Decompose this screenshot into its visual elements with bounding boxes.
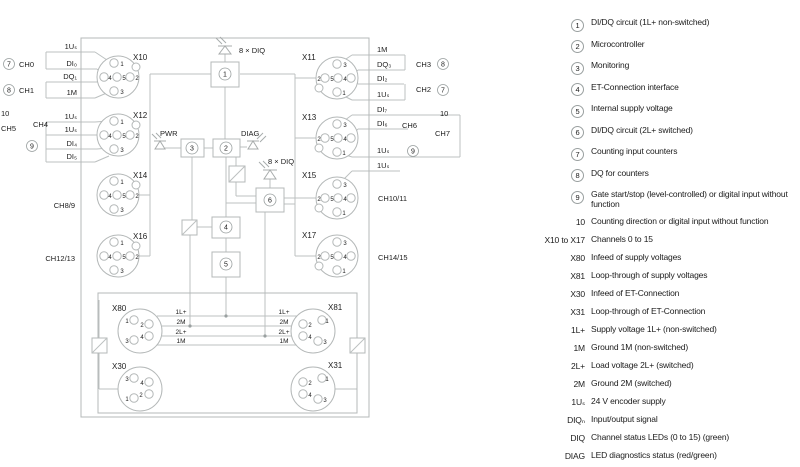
svg-text:DI₂: DI₂ bbox=[377, 74, 388, 83]
legend-row: 6DI/DQ circuit (2L+ switched) bbox=[531, 126, 797, 140]
legend-key: X30 bbox=[531, 289, 585, 299]
svg-text:DI₆: DI₆ bbox=[377, 119, 388, 128]
svg-text:X13: X13 bbox=[302, 113, 317, 122]
svg-text:2M: 2M bbox=[279, 319, 288, 326]
svg-text:1Uₛ: 1Uₛ bbox=[65, 42, 78, 51]
block-4: 4 bbox=[212, 217, 240, 238]
legend-key: X80 bbox=[531, 253, 585, 263]
connector-x31: X31 1 2 4 3 bbox=[291, 361, 343, 411]
connector-x15: X15 3 2 5 4 1 bbox=[302, 171, 358, 219]
legend-text: Gate start/stop (level-controlled) or di… bbox=[591, 190, 797, 209]
svg-text:1Uₛ: 1Uₛ bbox=[65, 112, 78, 121]
legend-text: LED diagnostics status (red/green) bbox=[591, 451, 797, 461]
legend-text: Internal supply voltage bbox=[591, 104, 797, 114]
power-bus-labels: 1L+ 2M 2L+ 1M 1L+ 2M 2L+ 1M bbox=[175, 309, 289, 345]
legend-key: 2 bbox=[571, 40, 584, 53]
channel-ch2: CH2 bbox=[416, 85, 431, 94]
legend-row: 2Microcontroller bbox=[531, 40, 797, 54]
legend-key: 5 bbox=[571, 105, 584, 118]
legend-row: 10Counting direction or digital input wi… bbox=[531, 217, 797, 227]
legend-text: Infeed of supply voltages bbox=[591, 253, 797, 263]
legend-row: X80Infeed of supply voltages bbox=[531, 253, 797, 263]
svg-text:4: 4 bbox=[224, 225, 228, 232]
connector-x14: X14 1 4 5 2 3 bbox=[97, 171, 148, 216]
channel-ch0: CH0 bbox=[19, 60, 34, 69]
svg-text:5: 5 bbox=[224, 262, 228, 269]
legend-key: 4 bbox=[571, 83, 584, 96]
svg-text:DQ₁: DQ₁ bbox=[63, 72, 77, 81]
led-diag-label: DIAG bbox=[241, 129, 260, 138]
legend-text: Loop-through of supply voltages bbox=[591, 271, 797, 281]
legend-key: DIAG bbox=[531, 451, 585, 461]
marker-8: 8 bbox=[7, 88, 11, 95]
legend-key: X31 bbox=[531, 307, 585, 317]
legend-key: 1 bbox=[571, 19, 584, 32]
connector-x80: X80 1 2 4 3 bbox=[112, 304, 162, 353]
svg-text:X12: X12 bbox=[133, 111, 148, 120]
svg-text:2: 2 bbox=[224, 146, 228, 153]
legend-text: Supply voltage 1L+ (non-switched) bbox=[591, 325, 797, 335]
legend-row: 2L+Load voltage 2L+ (switched) bbox=[531, 361, 797, 371]
svg-text:1: 1 bbox=[223, 72, 227, 79]
svg-text:1L+: 1L+ bbox=[175, 309, 186, 316]
led-diq-top: 8 × DIQ bbox=[216, 37, 265, 55]
led-pwr-label: PWR bbox=[160, 129, 178, 138]
connector-x10: X10 1 4 5 2 3 bbox=[97, 53, 148, 98]
led-diq-mid: 8 × DIQ bbox=[259, 157, 294, 179]
legend-text: Counting input counters bbox=[591, 147, 797, 157]
legend-key: 1L+ bbox=[531, 325, 585, 335]
channel-ch8-9: CH8/9 bbox=[54, 201, 75, 210]
svg-text:1M: 1M bbox=[176, 338, 185, 345]
legend-row: 9Gate start/stop (level-controlled) or d… bbox=[531, 190, 797, 209]
channel-ch4: CH4 bbox=[33, 120, 48, 129]
svg-text:X30: X30 bbox=[112, 362, 127, 371]
channel-ch1: CH1 bbox=[19, 86, 34, 95]
legend-row: 3Monitoring bbox=[531, 61, 797, 75]
connector-x17: X17 3 2 5 4 1 bbox=[302, 231, 358, 277]
legend-key: 2M bbox=[531, 379, 585, 389]
wires bbox=[46, 52, 460, 389]
legend-row: X81Loop-through of supply voltages bbox=[531, 271, 797, 281]
led-diq-mid-label: 8 × DIQ bbox=[268, 157, 294, 166]
marker-8r: 8 bbox=[441, 62, 445, 69]
channel-ch14-15: CH14/15 bbox=[378, 253, 408, 262]
legend-key: 9 bbox=[571, 191, 584, 204]
block-5: 5 bbox=[212, 252, 240, 277]
connector-x11: X11 3 2 5 4 1 bbox=[302, 53, 358, 99]
svg-text:1Uₛ: 1Uₛ bbox=[377, 146, 390, 155]
legend-row: X30Infeed of ET-Connection bbox=[531, 289, 797, 299]
legend-text: Ground 2M (switched) bbox=[591, 379, 797, 389]
connector-x30: X30 3 4 2 1 bbox=[112, 362, 162, 411]
legend-text: ET-Connection interface bbox=[591, 83, 797, 93]
svg-text:X31: X31 bbox=[328, 361, 343, 370]
marker-10: 10 bbox=[1, 109, 9, 118]
legend-row: 7Counting input counters bbox=[531, 147, 797, 161]
legend-key: X81 bbox=[531, 271, 585, 281]
legend-key: DIQₙ bbox=[531, 415, 585, 425]
legend-text: DI/DQ circuit (2L+ switched) bbox=[591, 126, 797, 136]
connector-x13: X13 3 2 5 4 1 bbox=[302, 113, 358, 159]
wiring-diagram: X10 1 4 5 2 3 X12 1 4 5 2 3 X14 1 4 5 2 … bbox=[0, 0, 540, 467]
legend-key: 10 bbox=[531, 217, 585, 227]
channel-ch7: CH7 bbox=[435, 129, 450, 138]
svg-text:X81: X81 bbox=[328, 303, 343, 312]
legend-row: DIQₙInput/output signal bbox=[531, 415, 797, 425]
legend-key: 1M bbox=[531, 343, 585, 353]
svg-text:X17: X17 bbox=[302, 231, 317, 240]
legend-row: 1MGround 1M (non-switched) bbox=[531, 343, 797, 353]
legend-key: 7 bbox=[571, 148, 584, 161]
legend-key: 6 bbox=[571, 126, 584, 139]
led-pwr: PWR bbox=[152, 129, 178, 149]
svg-text:X80: X80 bbox=[112, 304, 127, 313]
legend-text: Channels 0 to 15 bbox=[591, 235, 797, 245]
svg-text:DI₅: DI₅ bbox=[66, 152, 77, 161]
svg-text:X15: X15 bbox=[302, 171, 317, 180]
legend-row: X31Loop-through of ET-Connection bbox=[531, 307, 797, 317]
legend-key: X10 to X17 bbox=[531, 235, 585, 245]
connector-x81: X81 1 2 4 3 bbox=[291, 303, 343, 353]
terminal-labels-left: 1Uₛ DI₀ DQ₁ 1M 1Uₛ 1Uₛ DI₄ DI₅ 7 CH0 8 C… bbox=[1, 42, 77, 263]
legend-row: DIQChannel status LEDs (0 to 15) (green) bbox=[531, 433, 797, 443]
legend-row: X10 to X17Channels 0 to 15 bbox=[531, 235, 797, 245]
connector-label: X10 bbox=[133, 53, 148, 62]
legend-key: 1Uₛ bbox=[531, 397, 585, 407]
legend-key: 3 bbox=[571, 62, 584, 75]
svg-text:1Uₛ: 1Uₛ bbox=[65, 125, 78, 134]
legend-key: DIQ bbox=[531, 433, 585, 443]
legend-text: DI/DQ circuit (1L+ non-switched) bbox=[591, 18, 797, 28]
legend-key: 2L+ bbox=[531, 361, 585, 371]
block-1: 1 bbox=[211, 62, 239, 87]
legend-text: Loop-through of ET-Connection bbox=[591, 307, 797, 317]
legend-row: 4ET-Connection interface bbox=[531, 83, 797, 97]
svg-text:1Uₛ: 1Uₛ bbox=[377, 90, 390, 99]
channel-ch10-11: CH10/11 bbox=[378, 194, 407, 203]
connector-x16: X16 1 4 5 2 3 bbox=[97, 232, 148, 277]
legend-text: Microcontroller bbox=[591, 40, 797, 50]
svg-text:2L+: 2L+ bbox=[278, 329, 289, 336]
legend-text: DQ for counters bbox=[591, 169, 797, 179]
svg-text:X14: X14 bbox=[133, 171, 148, 180]
marker-7r: 7 bbox=[441, 88, 445, 95]
svg-text:DQ₃: DQ₃ bbox=[377, 60, 391, 69]
legend-row: 1Uₛ24 V encoder supply bbox=[531, 397, 797, 407]
legend-row: DIAGLED diagnostics status (red/green) bbox=[531, 451, 797, 461]
marker-9: 9 bbox=[30, 144, 34, 151]
channel-ch6: CH6 bbox=[402, 121, 417, 130]
legend-row: 2MGround 2M (switched) bbox=[531, 379, 797, 389]
svg-text:2M: 2M bbox=[176, 319, 185, 326]
led-diag: DIAG bbox=[241, 129, 266, 149]
legend-row: 5Internal supply voltage bbox=[531, 104, 797, 118]
terminal-labels-right: 1M DQ₃ DI₂ 1Uₛ DI₇ DI₆ 1Uₛ 1Uₛ CH3 8 CH2… bbox=[377, 45, 450, 262]
block-2: 2 bbox=[213, 139, 240, 157]
legend-row: 1DI/DQ circuit (1L+ non-switched) bbox=[531, 18, 797, 32]
legend-row: 1L+Supply voltage 1L+ (non-switched) bbox=[531, 325, 797, 335]
svg-text:1M: 1M bbox=[377, 45, 387, 54]
svg-text:X16: X16 bbox=[133, 232, 148, 241]
legend: 1DI/DQ circuit (1L+ non-switched) 2Micro… bbox=[531, 18, 797, 467]
svg-text:3: 3 bbox=[190, 146, 194, 153]
svg-text:6: 6 bbox=[268, 198, 272, 205]
svg-text:DI₇: DI₇ bbox=[377, 105, 388, 114]
svg-text:DI₄: DI₄ bbox=[66, 139, 77, 148]
legend-text: Channel status LEDs (0 to 15) (green) bbox=[591, 433, 797, 443]
legend-text: Counting direction or digital input with… bbox=[591, 217, 797, 227]
svg-text:1L+: 1L+ bbox=[278, 309, 289, 316]
marker-9r: 9 bbox=[411, 149, 415, 156]
channel-ch5: CH5 bbox=[1, 124, 16, 133]
legend-text: Input/output signal bbox=[591, 415, 797, 425]
svg-text:1Uₛ: 1Uₛ bbox=[377, 161, 390, 170]
page: X10 1 4 5 2 3 X12 1 4 5 2 3 X14 1 4 5 2 … bbox=[0, 0, 800, 467]
legend-text: Monitoring bbox=[591, 61, 797, 71]
marker-7: 7 bbox=[7, 62, 11, 69]
svg-text:X11: X11 bbox=[302, 53, 316, 62]
block-6: 6 bbox=[256, 188, 284, 212]
legend-row: 8DQ for counters bbox=[531, 169, 797, 183]
channel-ch12-13: CH12/13 bbox=[45, 254, 75, 263]
block-3: 3 bbox=[181, 139, 204, 157]
led-diq-top-label: 8 × DIQ bbox=[239, 46, 265, 55]
channel-ch3: CH3 bbox=[416, 60, 431, 69]
svg-text:1M: 1M bbox=[279, 338, 288, 345]
legend-text: Infeed of ET-Connection bbox=[591, 289, 797, 299]
legend-text: Load voltage 2L+ (switched) bbox=[591, 361, 797, 371]
legend-text: Ground 1M (non-switched) bbox=[591, 343, 797, 353]
legend-text: 24 V encoder supply bbox=[591, 397, 797, 407]
svg-text:DI₀: DI₀ bbox=[66, 59, 77, 68]
svg-text:1M: 1M bbox=[67, 88, 77, 97]
connector-x12: X12 1 4 5 2 3 bbox=[97, 111, 148, 156]
svg-text:2L+: 2L+ bbox=[175, 329, 186, 336]
legend-key: 8 bbox=[571, 169, 584, 182]
marker-10r: 10 bbox=[440, 109, 448, 118]
